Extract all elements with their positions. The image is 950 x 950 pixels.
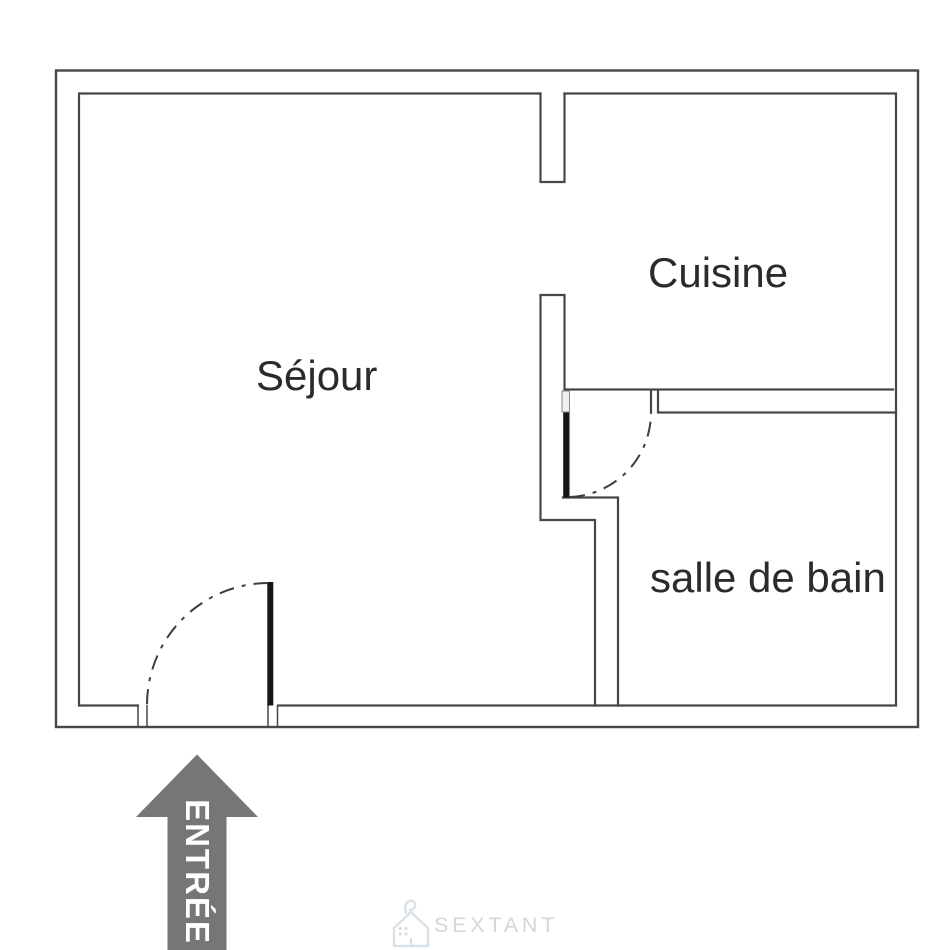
outer-wall [56,71,918,728]
entrance-door-swing-arc [147,583,268,704]
sejour-bathroom-wall [541,295,619,706]
floor-plan: Séjour Cuisine salle de bain ENTRÉE SEXT… [0,0,950,950]
cuisine-bathroom-wall [565,390,897,413]
entrance-label: ENTRÉE [167,787,227,950]
bathroom-door-leaf [563,413,569,498]
door-swings [147,413,651,705]
room-label-salle-de-bain: salle de bain [650,557,886,599]
entrance-door-leaf [267,582,273,706]
floor-plan-drawing [0,0,950,950]
house-icon-curl [405,901,415,913]
bathroom-door-jamb [562,391,570,412]
room-label-sejour: Séjour [256,355,377,397]
kitchen-wall-stub [541,94,565,183]
entrance-door-jambs [138,706,278,728]
house-icon [394,901,428,946]
walls [56,71,918,728]
house-icon-dots [398,927,407,936]
inner-wall [79,94,896,706]
room-label-cuisine: Cuisine [648,252,788,294]
bathroom-door-swing-arc [570,413,651,498]
door-leaves [267,413,569,706]
logo-text: SEXTANT [434,915,558,937]
